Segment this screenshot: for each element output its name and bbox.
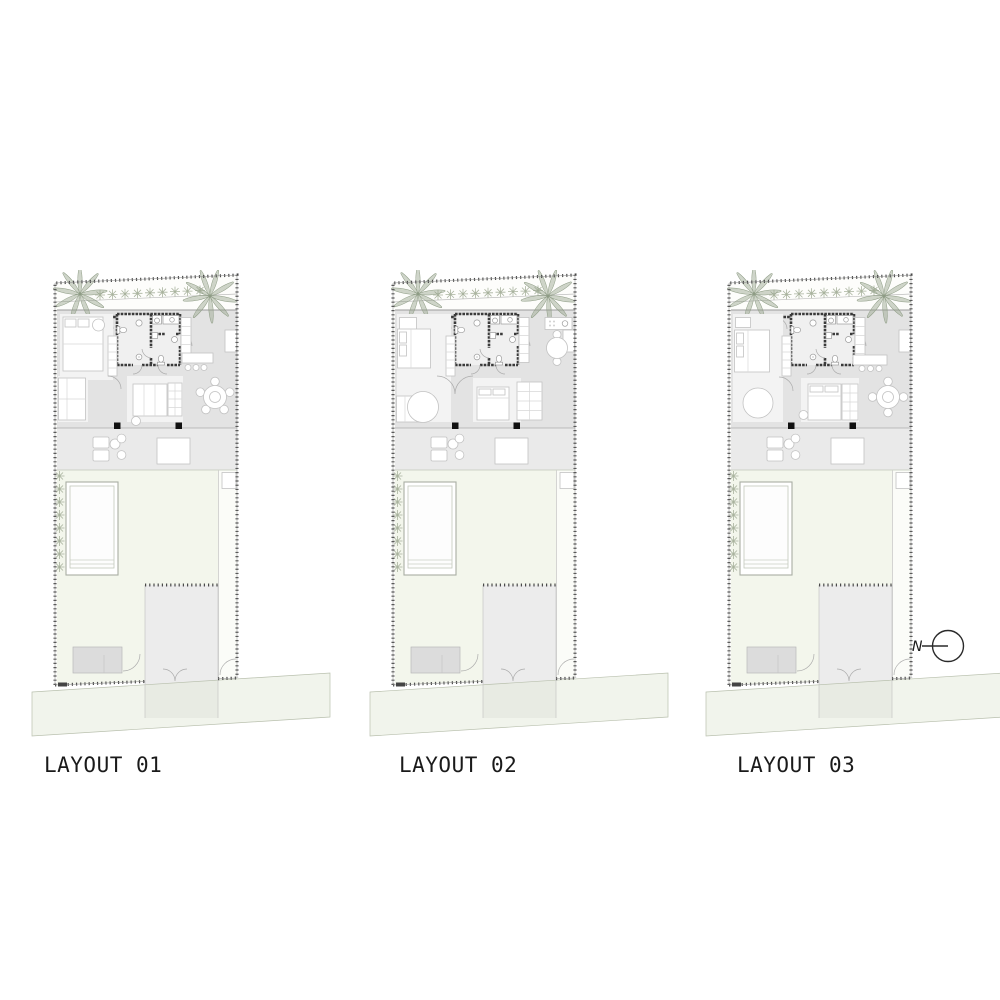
floor-plan-layout-03 bbox=[704, 270, 1000, 748]
floor-plan-layout-01 bbox=[30, 270, 340, 748]
presentation-sheet: { "layouts": [ {"id": "layout-01", "labe… bbox=[0, 0, 1000, 1000]
north-label: N bbox=[912, 639, 923, 655]
north-arrow-icon bbox=[922, 631, 964, 662]
north-indicator: N bbox=[905, 620, 983, 674]
floor-plan-layout-02 bbox=[368, 270, 678, 748]
layout-02-label: LAYOUT 02 bbox=[399, 752, 517, 778]
layout-01-label: LAYOUT 01 bbox=[44, 752, 162, 778]
layout-03-label: LAYOUT 03 bbox=[737, 752, 855, 778]
